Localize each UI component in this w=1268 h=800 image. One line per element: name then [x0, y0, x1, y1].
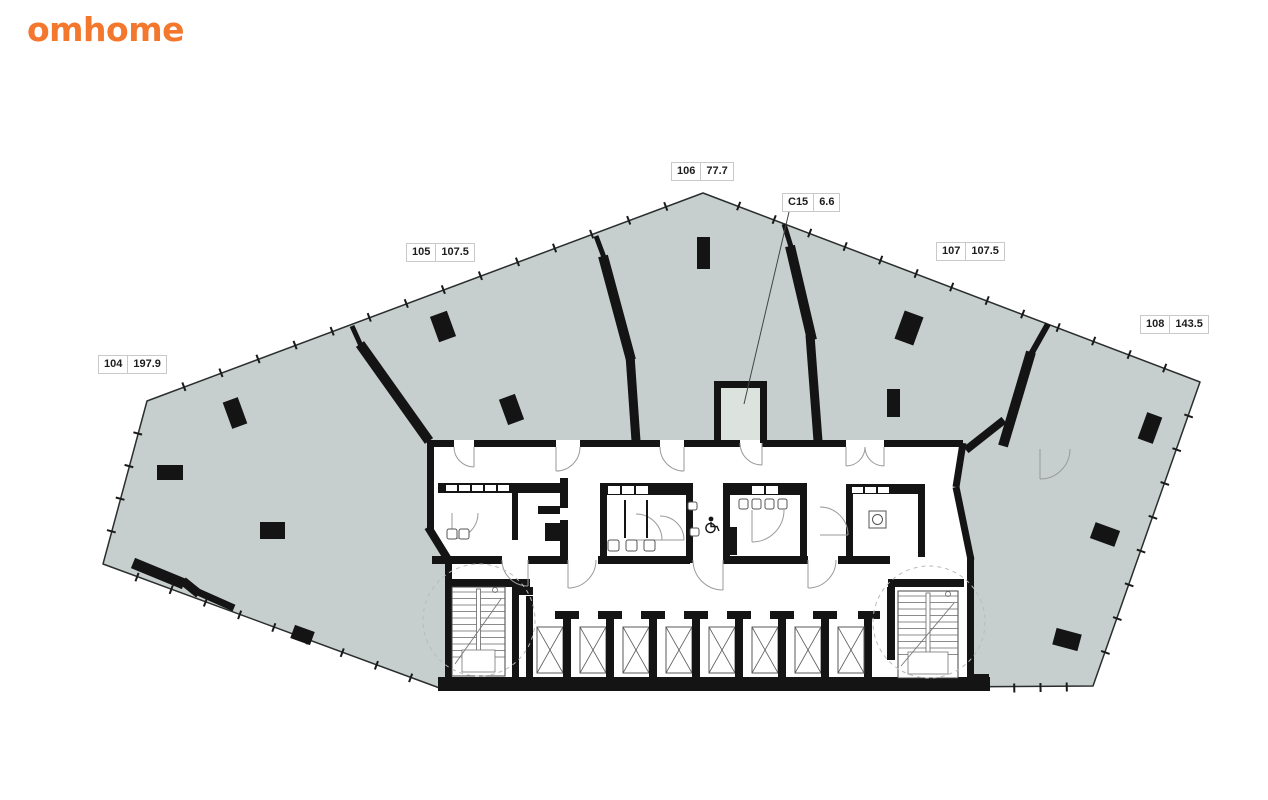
unit-area: 77.7	[700, 163, 732, 180]
unit-area: 143.5	[1169, 316, 1208, 333]
unit-label-105[interactable]: 105 107.5	[406, 243, 475, 262]
unit-number: 107	[937, 243, 965, 260]
unit-area: 107.5	[965, 243, 1004, 260]
unit-label-108[interactable]: 108 143.5	[1140, 315, 1209, 334]
unit-area: 197.9	[127, 356, 166, 373]
floor-plan-page: omhome	[0, 0, 1268, 800]
room-c15	[714, 381, 767, 443]
unit-label-106[interactable]: 106 77.7	[671, 162, 734, 181]
unit-area: 107.5	[435, 244, 474, 261]
unit-area: 6.6	[813, 194, 839, 211]
floor-plan-svg	[0, 0, 1268, 800]
unit-number: 106	[672, 163, 700, 180]
unit-number: 105	[407, 244, 435, 261]
unit-label-107[interactable]: 107 107.5	[936, 242, 1005, 261]
unit-number: 104	[99, 356, 127, 373]
unit-number: C15	[783, 194, 813, 211]
unit-label-104[interactable]: 104 197.9	[98, 355, 167, 374]
unit-label-c15[interactable]: C15 6.6	[782, 193, 840, 212]
unit-number: 108	[1141, 316, 1169, 333]
